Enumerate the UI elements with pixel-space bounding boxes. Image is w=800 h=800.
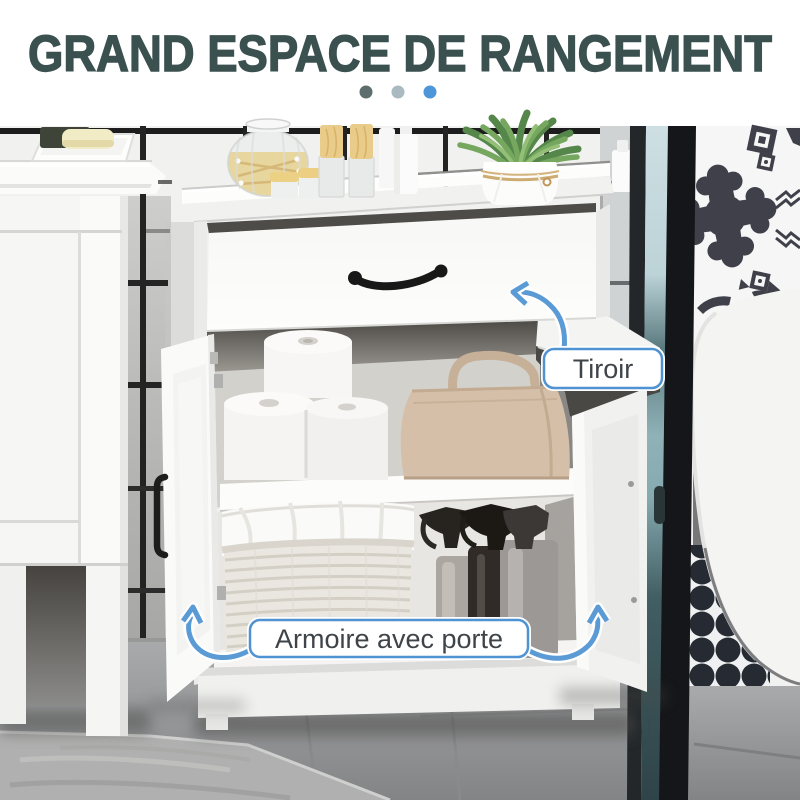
svg-text:GRAND ESPACE DE RANGEMENT: GRAND ESPACE DE RANGEMENT xyxy=(28,25,772,82)
svg-text:Armoire avec porte: Armoire avec porte xyxy=(275,624,503,654)
svg-text:Tiroir: Tiroir xyxy=(573,354,634,384)
